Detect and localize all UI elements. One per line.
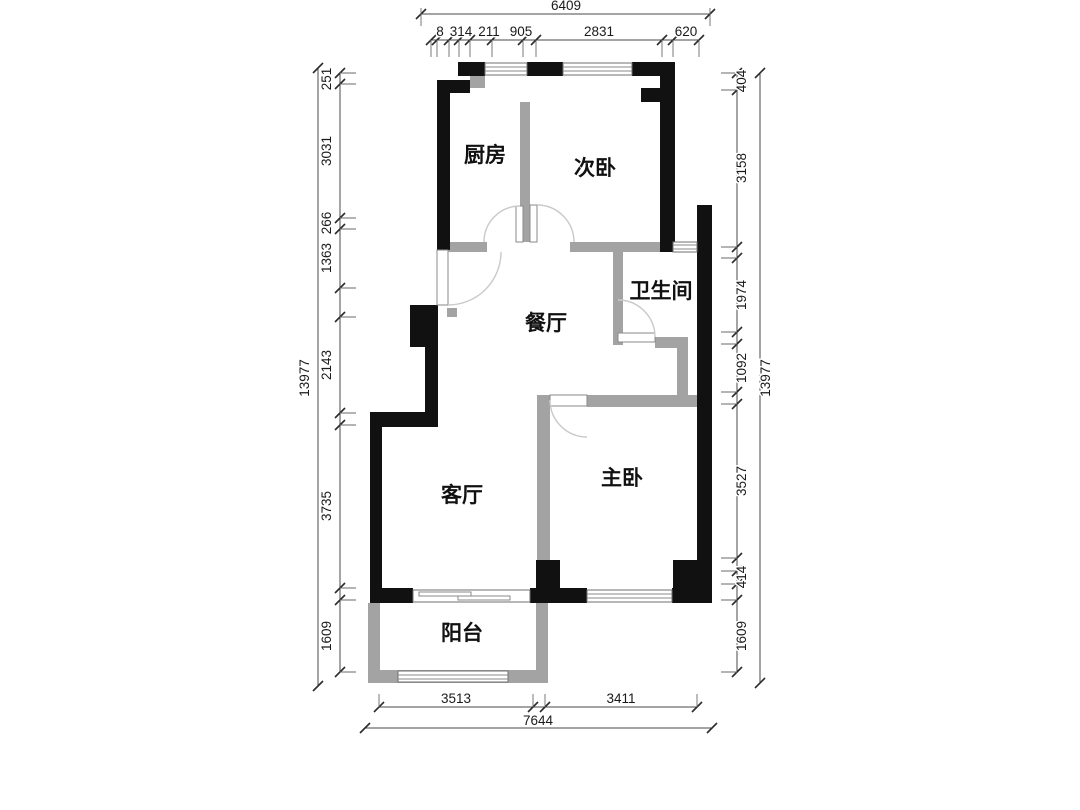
dim-bottom-overall: 7644 bbox=[523, 713, 554, 728]
room-label-dining: 餐厅 bbox=[525, 311, 567, 335]
room-label-balcony: 阳台 bbox=[441, 621, 483, 645]
dim-right-seg-4: 3527 bbox=[734, 466, 749, 496]
dim-right-overall: 13977 bbox=[758, 359, 773, 397]
dim-top-seg-1: 314 bbox=[450, 24, 473, 39]
dim-top-seg-5: 620 bbox=[675, 24, 698, 39]
bathroom-door bbox=[618, 300, 655, 342]
floor-plan-svg: 厨房 次卧 卫生间 餐厅 客厅 主卧 阳台 6409 8 314 211 905… bbox=[0, 0, 1080, 810]
dim-top: 6409 8 314 211 905 2831 620 bbox=[416, 0, 715, 57]
dim-left-seg-3: 1363 bbox=[319, 243, 334, 273]
dim-top-seg-0: 8 bbox=[436, 24, 444, 39]
dim-left-seg-1: 3031 bbox=[319, 136, 334, 166]
balcony-window bbox=[398, 671, 508, 682]
dim-left-seg-6: 1609 bbox=[319, 621, 334, 651]
dim-right-seg-1: 3158 bbox=[734, 153, 749, 183]
room-labels: 厨房 次卧 卫生间 餐厅 客厅 主卧 阳台 bbox=[441, 143, 693, 645]
second-bedroom-window bbox=[563, 63, 632, 75]
dim-right-seg-6: 1609 bbox=[734, 621, 749, 651]
room-label-master: 主卧 bbox=[601, 467, 643, 490]
room-label-second-bedroom: 次卧 bbox=[574, 156, 616, 180]
dim-left-seg-0: 251 bbox=[319, 68, 334, 91]
dim-right-seg-3: 1092 bbox=[734, 353, 749, 383]
room-label-bathroom: 卫生间 bbox=[630, 279, 693, 303]
dim-top-seg-3: 905 bbox=[510, 24, 533, 39]
room-label-kitchen: 厨房 bbox=[464, 143, 506, 167]
dim-left: 251 3031 266 1363 2143 3735 1609 13977 bbox=[297, 63, 356, 691]
dim-right-seg-0: 404 bbox=[734, 69, 749, 92]
living-balcony-slider bbox=[413, 590, 530, 602]
dim-right-seg-2: 1974 bbox=[734, 279, 749, 310]
dim-top-overall: 6409 bbox=[551, 0, 581, 13]
dim-left-overall: 13977 bbox=[297, 359, 312, 397]
room-label-living: 客厅 bbox=[441, 483, 483, 507]
dim-bottom-seg-1: 3411 bbox=[606, 691, 635, 706]
dim-right-seg-5: 414 bbox=[734, 565, 749, 588]
master-bedroom-window bbox=[587, 590, 672, 602]
bathroom-window bbox=[673, 242, 697, 252]
dim-bottom-seg-0: 3513 bbox=[441, 691, 471, 706]
dim-left-seg-2: 266 bbox=[319, 212, 334, 235]
dim-right: 404 3158 1974 1092 3527 414 1609 13977 bbox=[721, 68, 773, 688]
floor-plan: 厨房 次卧 卫生间 餐厅 客厅 主卧 阳台 6409 8 314 211 905… bbox=[0, 0, 1080, 810]
kitchen-window bbox=[485, 63, 527, 75]
dim-top-seg-2: 211 bbox=[478, 24, 500, 39]
master-bedroom-door bbox=[550, 395, 587, 437]
kitchen-door bbox=[484, 206, 523, 242]
dim-left-seg-4: 2143 bbox=[319, 350, 334, 380]
dim-top-seg-4: 2831 bbox=[584, 24, 614, 39]
dim-left-seg-5: 3735 bbox=[319, 491, 334, 521]
dim-bottom: 3513 3411 7644 bbox=[360, 691, 717, 733]
entry-door bbox=[437, 250, 501, 305]
second-bedroom-door bbox=[530, 205, 574, 242]
